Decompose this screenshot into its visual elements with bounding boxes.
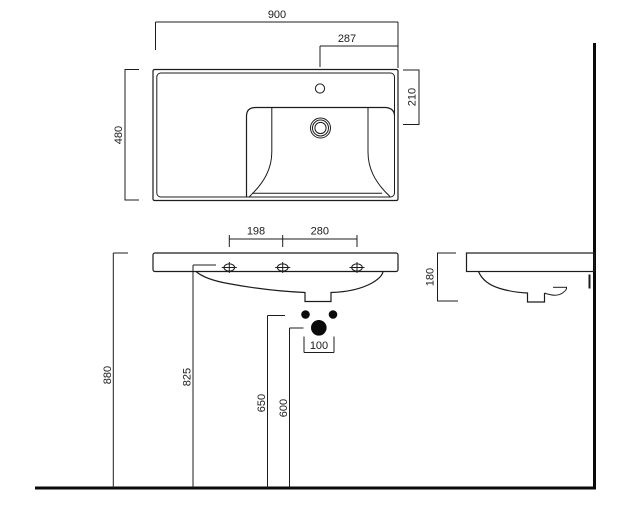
bowl-right-slope (368, 108, 390, 197)
dim-overall-width: 900 (156, 9, 399, 68)
dim-bracket (438, 253, 459, 301)
deck-front-profile (153, 253, 398, 272)
technical-drawing-page: 900 287 210 480 (0, 0, 628, 532)
bowl-opening-outline (247, 108, 395, 198)
front-view: 100 198 280 880 825 650 (102, 226, 398, 489)
dim-overall-width-label: 900 (268, 9, 286, 21)
dim-tap-offset-label: 287 (338, 33, 356, 45)
dim-basin-height-label: 180 (425, 268, 437, 286)
dim-fixing-hole-height-label: 825 (182, 368, 194, 386)
waste-point (311, 320, 327, 336)
dim-overall-depth-label: 480 (113, 126, 125, 144)
dim-hole-spacing-right-label: 280 (311, 226, 329, 238)
dim-overall-depth: 480 (113, 70, 139, 201)
supply-point-right (329, 310, 338, 319)
dim-rim-height: 880 (102, 253, 128, 488)
dim-waste-offset-label: 100 (310, 340, 328, 352)
dim-bracket (125, 70, 139, 201)
bowl-side-profile (479, 272, 545, 303)
dim-waste-offset: 100 (304, 337, 334, 353)
bowl-left-slope (249, 108, 272, 198)
supply-point-left (301, 310, 310, 319)
dim-waste-height-label: 600 (278, 399, 290, 417)
drain-outer-ring (311, 118, 331, 138)
trap-curve (545, 287, 567, 295)
tap-hole (315, 84, 324, 93)
deck-side-profile (467, 253, 595, 272)
dim-rim-height-label: 880 (102, 366, 114, 384)
top-view: 900 287 210 480 (113, 9, 419, 201)
dim-hole-spacing: 198 280 (229, 226, 357, 248)
dim-drain-setback-label: 210 (407, 88, 419, 106)
wall-and-floor (35, 43, 596, 490)
drawing-canvas: 900 287 210 480 (0, 0, 628, 532)
dim-fixing-hole-height: 825 (182, 265, 217, 488)
bowl-underside-profile (196, 272, 383, 302)
dim-tap-offset: 287 (320, 33, 398, 67)
dim-hole-spacing-left-label: 198 (247, 226, 265, 238)
dim-drain-setback: 210 (403, 70, 419, 125)
dim-supply-height-label: 650 (256, 394, 268, 412)
basin-outer-edge (153, 70, 398, 201)
dim-basin-height: 180 (425, 253, 459, 301)
dim-waste-height: 600 (278, 328, 304, 488)
side-view: 180 (425, 253, 595, 302)
basin-inner-rim (157, 73, 395, 197)
drain-inner-ring (315, 122, 326, 133)
